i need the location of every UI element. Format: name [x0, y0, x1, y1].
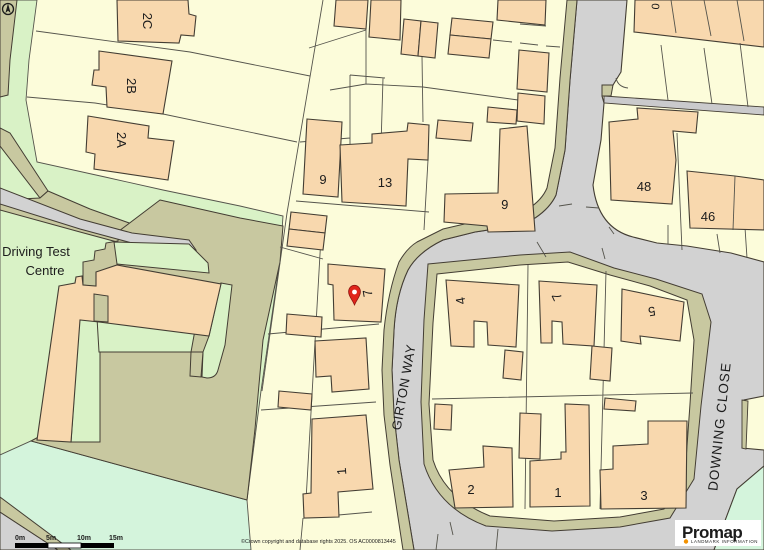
svg-text:1: 1 — [334, 467, 350, 476]
svg-text:46: 46 — [701, 209, 715, 224]
svg-text:3: 3 — [640, 488, 647, 503]
svg-text:1: 1 — [554, 485, 561, 500]
svg-text:Driving Test: Driving Test — [2, 244, 70, 259]
svg-text:0: 0 — [648, 3, 660, 10]
svg-text:48: 48 — [637, 179, 651, 194]
svg-text:6: 6 — [501, 197, 509, 212]
svg-text:2C: 2C — [140, 13, 155, 30]
svg-text:2: 2 — [467, 482, 474, 497]
svg-text:Centre: Centre — [25, 263, 64, 278]
svg-text:0m: 0m — [15, 535, 25, 542]
svg-text:2B: 2B — [124, 78, 139, 94]
svg-text:13: 13 — [378, 175, 392, 190]
svg-text:10m: 10m — [77, 535, 91, 542]
svg-text:2A: 2A — [114, 132, 129, 148]
svg-text:15m: 15m — [109, 535, 123, 542]
svg-text:9: 9 — [319, 172, 326, 187]
svg-text:©Crown copyright and database: ©Crown copyright and database rights 202… — [241, 538, 396, 545]
svg-text:5m: 5m — [46, 535, 56, 542]
svg-text:LANDMARK INFORMATION: LANDMARK INFORMATION — [691, 539, 758, 544]
